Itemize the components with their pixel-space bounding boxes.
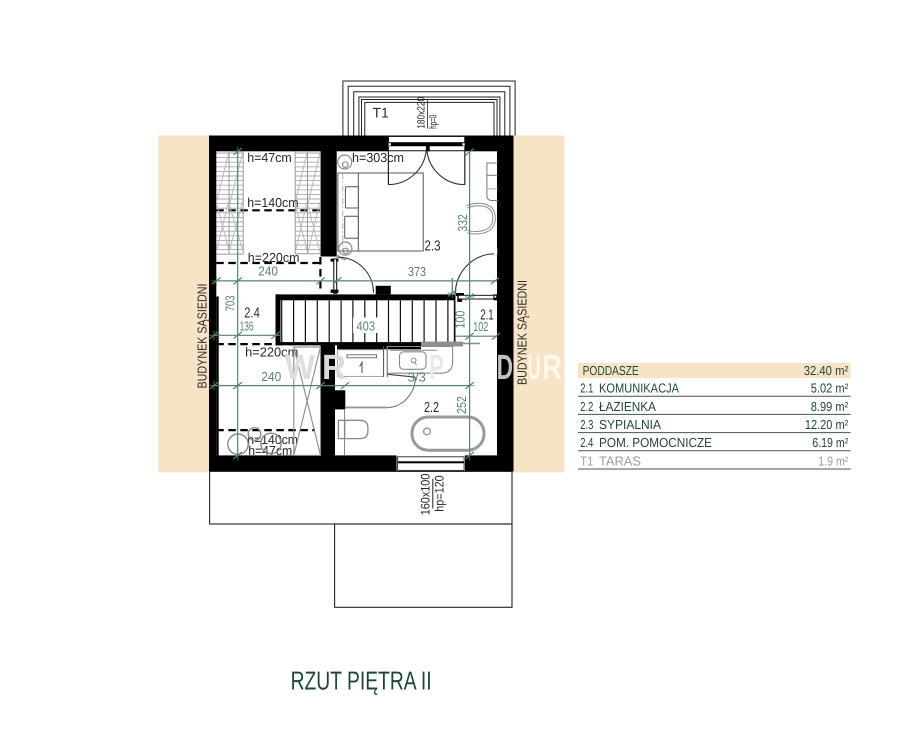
svg-text:U: U bbox=[528, 348, 541, 387]
svg-text:2.2: 2.2 bbox=[424, 400, 439, 416]
svg-text:h=47cm: h=47cm bbox=[247, 150, 292, 165]
svg-text:240: 240 bbox=[261, 369, 281, 384]
svg-text:403: 403 bbox=[357, 319, 376, 334]
svg-text:hp=120: hp=120 bbox=[433, 475, 447, 511]
svg-text:1.9 m²: 1.9 m² bbox=[818, 453, 849, 468]
svg-text:373: 373 bbox=[408, 264, 426, 279]
svg-text:PODDASZE: PODDASZE bbox=[583, 363, 639, 378]
svg-text:BUDYNEK SĄSIEDNI: BUDYNEK SĄSIEDNI bbox=[195, 284, 210, 389]
svg-text:102: 102 bbox=[473, 319, 488, 334]
svg-text:100: 100 bbox=[453, 311, 468, 329]
svg-text:R: R bbox=[542, 348, 562, 387]
svg-text:3/3: 3/3 bbox=[408, 370, 426, 385]
svg-text:2.3: 2.3 bbox=[425, 238, 441, 254]
svg-text:12.20 m²: 12.20 m² bbox=[805, 417, 849, 432]
svg-text:ŁAZIENKA: ŁAZIENKA bbox=[599, 399, 656, 414]
svg-text:2.2: 2.2 bbox=[580, 399, 593, 414]
svg-text:160x100: 160x100 bbox=[419, 474, 433, 516]
svg-text:252: 252 bbox=[454, 396, 469, 414]
svg-text:32.40 m²: 32.40 m² bbox=[804, 363, 849, 378]
svg-text:6.19 m²: 6.19 m² bbox=[812, 435, 849, 450]
svg-text:332: 332 bbox=[455, 214, 470, 231]
svg-text:R: R bbox=[322, 348, 346, 387]
svg-text:5.02 m²: 5.02 m² bbox=[811, 381, 849, 396]
svg-text:2.1: 2.1 bbox=[580, 381, 593, 396]
svg-text:h=47cm: h=47cm bbox=[248, 443, 292, 458]
svg-text:RZUT PIĘTRA II: RZUT PIĘTRA II bbox=[291, 666, 432, 696]
svg-text:KOMUNIKACJA: KOMUNIKACJA bbox=[599, 381, 679, 396]
svg-text:D: D bbox=[497, 348, 513, 387]
svg-text:136: 136 bbox=[240, 319, 254, 334]
svg-text:8.99 m²: 8.99 m² bbox=[811, 399, 849, 414]
svg-text:SYPIALNIA: SYPIALNIA bbox=[599, 417, 661, 432]
svg-text:P: P bbox=[429, 348, 444, 387]
svg-text:180x220: 180x220 bbox=[416, 97, 428, 129]
svg-text:POM. POMOCNICZE: POM. POMOCNICZE bbox=[599, 435, 712, 450]
svg-text:2.3: 2.3 bbox=[580, 417, 593, 432]
svg-text:2.4: 2.4 bbox=[580, 435, 593, 450]
svg-text:W: W bbox=[285, 348, 315, 387]
svg-text:240: 240 bbox=[258, 263, 278, 278]
svg-text:T1: T1 bbox=[373, 105, 390, 121]
svg-text:TARAS: TARAS bbox=[599, 453, 641, 468]
svg-text:T1: T1 bbox=[580, 453, 593, 468]
svg-text:h=303cm: h=303cm bbox=[352, 150, 404, 165]
svg-text:hp=0: hp=0 bbox=[428, 115, 440, 129]
svg-text:h=140cm: h=140cm bbox=[247, 195, 298, 210]
svg-text:703: 703 bbox=[223, 295, 238, 311]
